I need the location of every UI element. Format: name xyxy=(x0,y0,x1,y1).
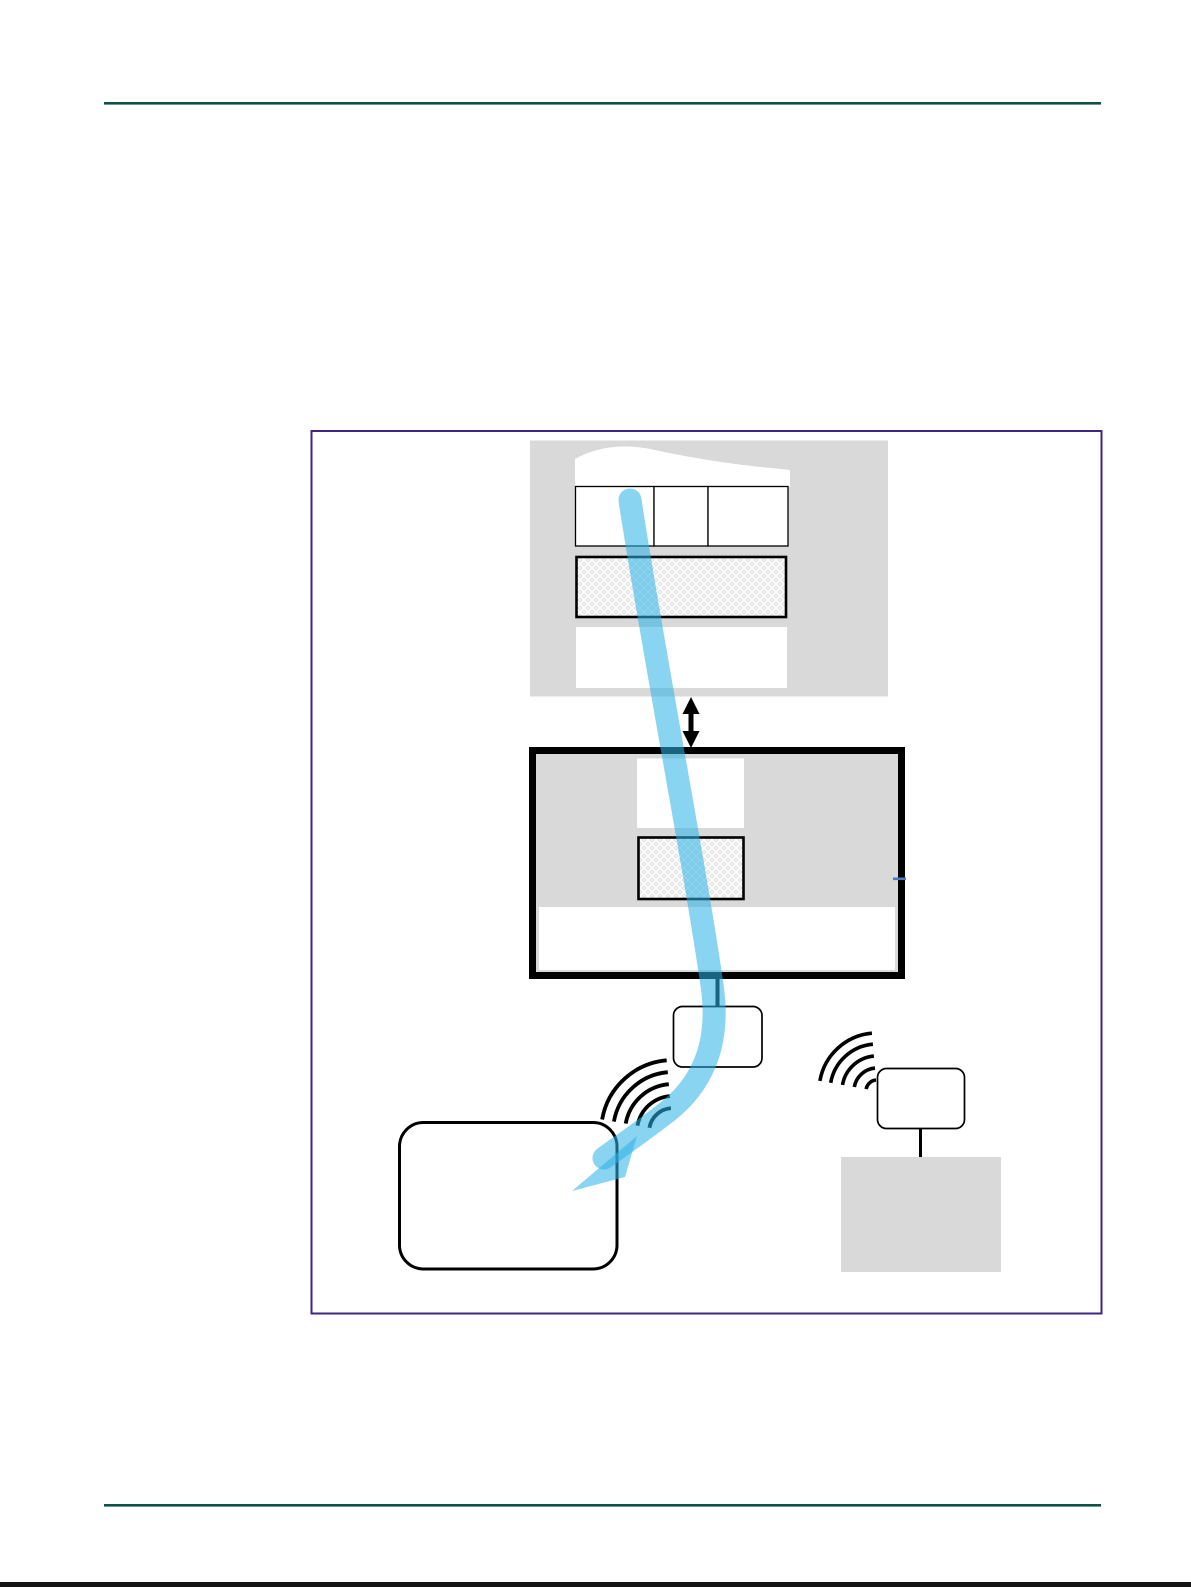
bottom-edge-strip xyxy=(0,1582,1191,1587)
footer-rule xyxy=(104,1504,1101,1507)
header-rule xyxy=(104,102,1101,105)
transmitter-box xyxy=(878,1069,965,1129)
figure-diagram xyxy=(0,0,1191,1587)
remote-unit-box xyxy=(400,1123,618,1270)
page-canvas xyxy=(0,0,1191,1587)
ceiling-white-slot xyxy=(576,627,787,688)
ceiling-cell-3 xyxy=(708,487,788,547)
ceiling-cell-2 xyxy=(654,487,708,547)
hatch-box-ceiling xyxy=(577,557,787,617)
floor-box xyxy=(841,1157,1001,1272)
document-page: { "figure": { "alt": "Schematic figure: … xyxy=(0,0,1191,1587)
